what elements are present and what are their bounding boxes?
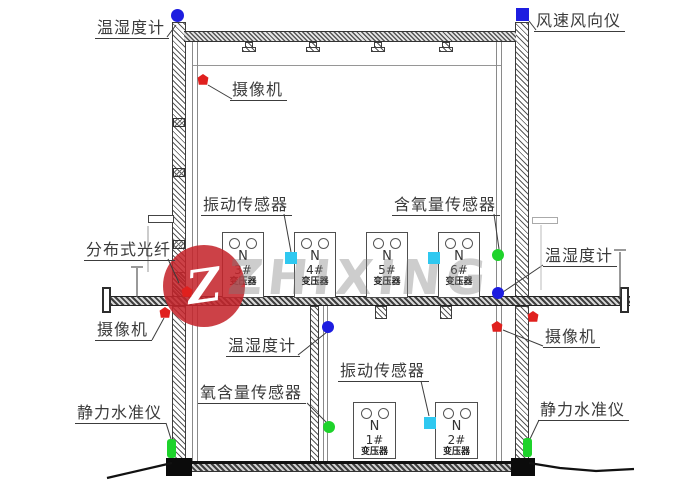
terminal-circle bbox=[373, 238, 384, 249]
label-camera-upper: 摄像机 bbox=[230, 81, 287, 101]
wall-base-left bbox=[166, 458, 192, 476]
anemometer-marker-top-right bbox=[516, 8, 529, 21]
wall-joint bbox=[173, 168, 185, 177]
mid-beam-stub bbox=[375, 306, 387, 319]
watermark-logo-letter: Z bbox=[184, 257, 225, 315]
slab-end-bracket-right bbox=[620, 287, 629, 313]
ceiling-line bbox=[193, 65, 501, 66]
terminal-circle bbox=[460, 408, 471, 419]
transformer-type: 变压器 bbox=[354, 447, 395, 457]
oxygen-marker-lower bbox=[323, 421, 335, 433]
transformer-number: 1# bbox=[354, 434, 395, 447]
terminal-circle bbox=[390, 238, 401, 249]
label-static-level-right: 静力水准仪 bbox=[538, 401, 629, 421]
roof-beam-stub-flange bbox=[371, 47, 385, 52]
wall-ledge-right bbox=[532, 217, 558, 224]
vibration-marker-upper-1 bbox=[285, 252, 297, 264]
transformer-terminals bbox=[354, 408, 395, 419]
label-hygrometer-top-left: 温湿度计 bbox=[95, 19, 169, 39]
vibration-marker-lower bbox=[424, 417, 436, 429]
transformer-terminals bbox=[367, 238, 407, 249]
hygrometer-marker-lower bbox=[322, 321, 334, 333]
terminal-circle bbox=[246, 238, 257, 249]
right-wall-upper bbox=[515, 22, 529, 297]
roof-beam-stub-flange bbox=[439, 47, 453, 52]
oxygen-marker-upper bbox=[492, 249, 504, 261]
terminal-circle bbox=[318, 238, 329, 249]
transformer-phase: N bbox=[354, 419, 395, 434]
roof-slab bbox=[184, 31, 516, 42]
camera-marker-upper bbox=[197, 74, 209, 86]
label-hygrometer-lower: 温湿度计 bbox=[226, 337, 300, 357]
watermark-brand-text: ZHIXING bbox=[225, 250, 493, 306]
transformer-terminals bbox=[436, 408, 477, 419]
vibration-marker-upper-2 bbox=[428, 252, 440, 264]
label-vibration-upper: 振动传感器 bbox=[201, 196, 292, 216]
transformer-phase: N bbox=[436, 419, 477, 434]
terminal-circle bbox=[361, 408, 372, 419]
label-oxygen-lower: 氧含量传感器 bbox=[198, 384, 306, 404]
label-camera-mid-left: 摄像机 bbox=[95, 321, 152, 341]
label-camera-mid-right: 摄像机 bbox=[543, 328, 600, 348]
static-level-marker-left bbox=[167, 439, 176, 458]
cad-cross-section-drawing: Z ZHIXING N 3# 变压器 N 4# 变压器 N 5# 变压器 N 6… bbox=[0, 0, 700, 493]
hygrometer-marker-right bbox=[492, 287, 504, 299]
roof-beam-stub-flange bbox=[306, 47, 320, 52]
mid-beam-stub bbox=[440, 306, 452, 319]
hygrometer-marker-top-left bbox=[171, 9, 184, 22]
label-anemometer: 风速风向仪 bbox=[534, 12, 625, 32]
label-hygrometer-right: 温湿度计 bbox=[543, 247, 617, 267]
label-vibration-lower: 振动传感器 bbox=[338, 362, 429, 382]
terminal-circle bbox=[443, 408, 454, 419]
transformer-terminals bbox=[223, 238, 263, 249]
transformer-1: N 1# 变压器 bbox=[353, 402, 396, 459]
transformer-type: 变压器 bbox=[436, 447, 477, 457]
transformer-number: 2# bbox=[436, 434, 477, 447]
terminal-circle bbox=[229, 238, 240, 249]
bottom-slab bbox=[172, 461, 530, 472]
terminal-circle bbox=[445, 238, 456, 249]
slab-end-bracket-left bbox=[102, 287, 111, 313]
terminal-circle bbox=[378, 408, 389, 419]
terminal-circle bbox=[462, 238, 473, 249]
interior-wall-lower bbox=[310, 306, 319, 463]
label-oxygen-upper: 含氧量传感器 bbox=[392, 196, 500, 216]
static-level-marker-right bbox=[523, 438, 532, 457]
wall-joint bbox=[173, 118, 185, 127]
transformer-2: N 2# 变压器 bbox=[435, 402, 478, 459]
transformer-terminals bbox=[439, 238, 479, 249]
wall-ledge-left bbox=[148, 215, 174, 223]
lining-line bbox=[192, 306, 193, 462]
terminal-circle bbox=[301, 238, 312, 249]
roof-beam-stub-flange bbox=[242, 47, 256, 52]
label-distributed-fiber: 分布式光纤 bbox=[84, 241, 175, 261]
wall-base-right bbox=[511, 458, 535, 476]
label-static-level-left: 静力水准仪 bbox=[75, 404, 166, 424]
transformer-terminals bbox=[295, 238, 335, 249]
